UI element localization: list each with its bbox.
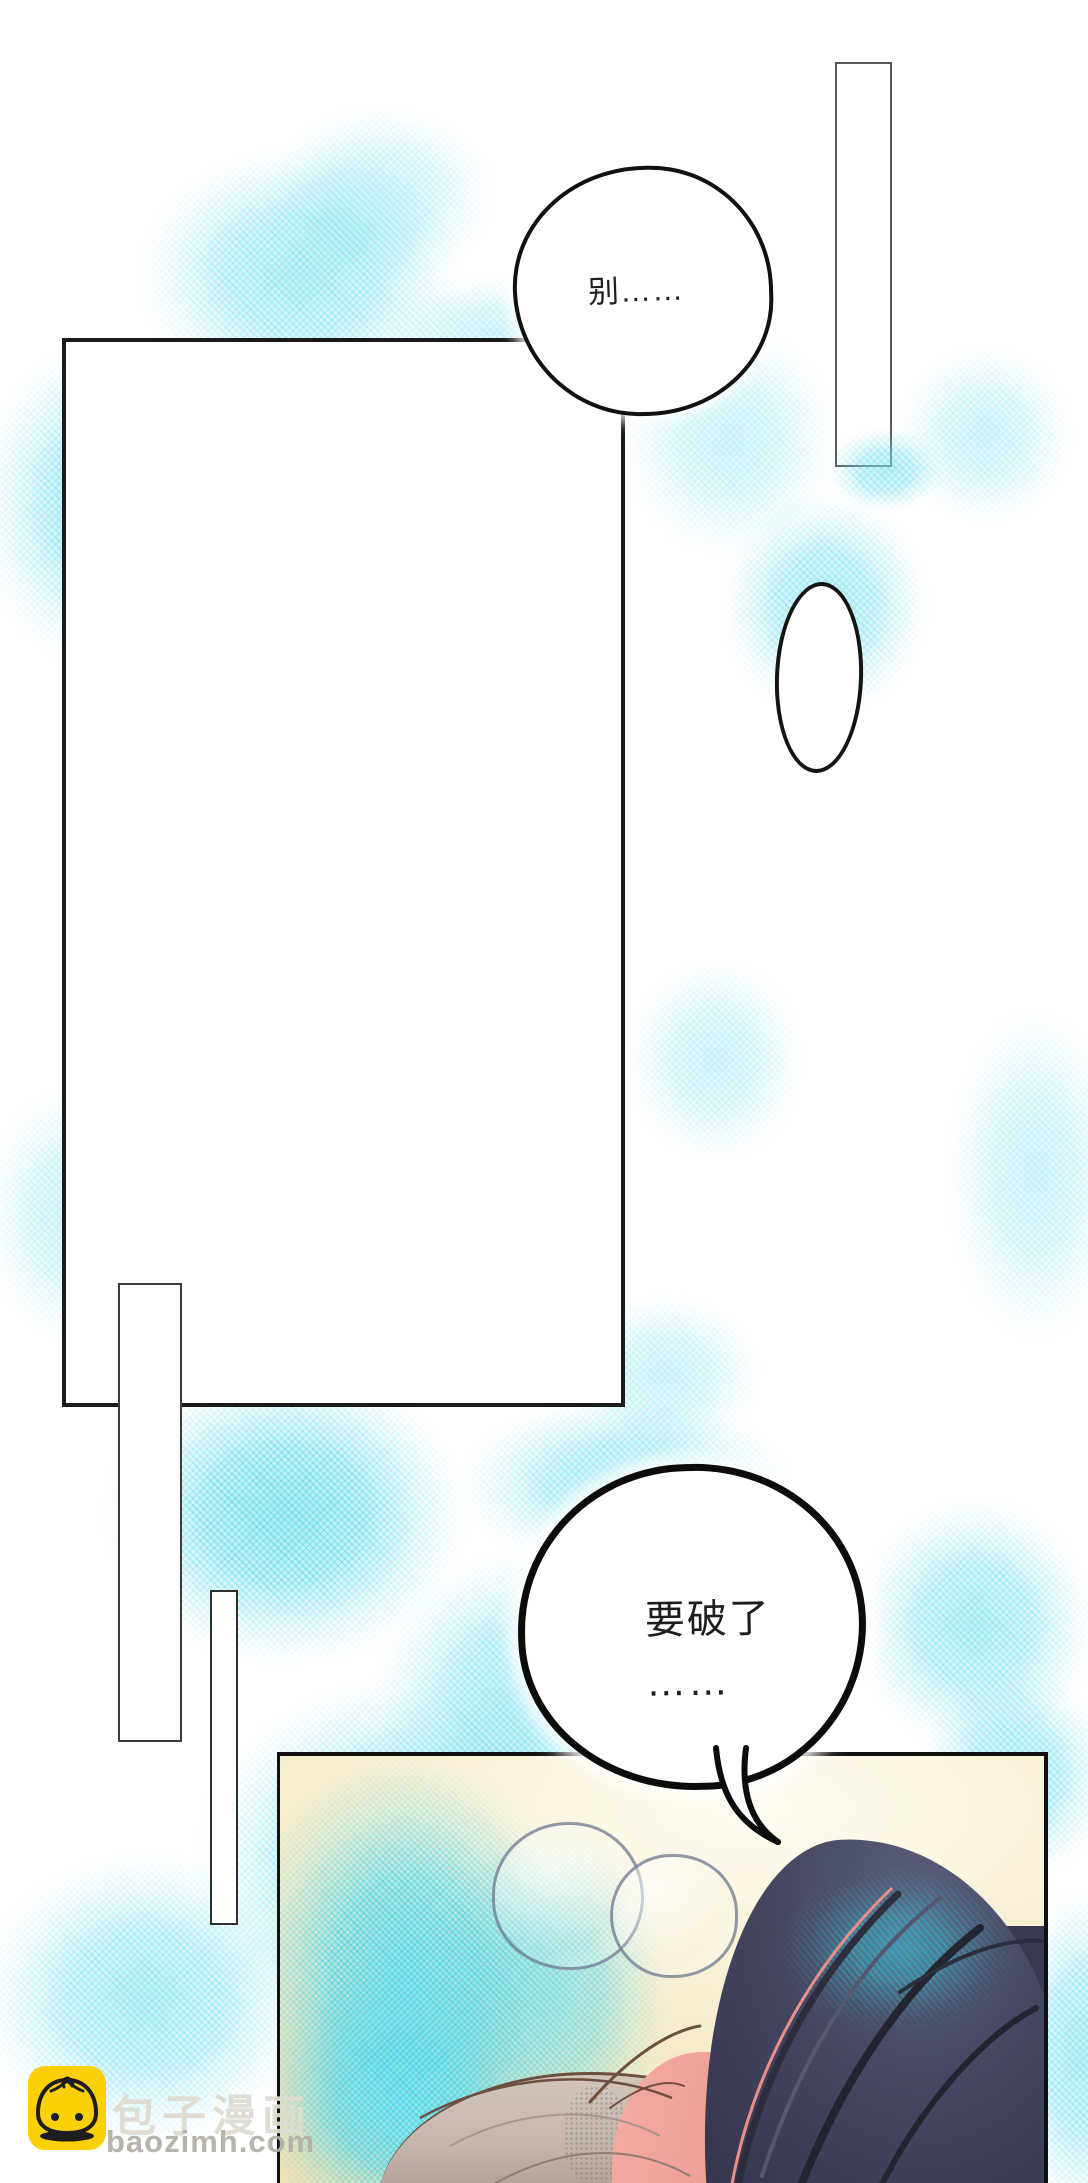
hair-strands-illustration: [280, 1756, 1048, 2183]
speech-line-2: ……: [645, 1650, 772, 1714]
small-oval-bubble: [772, 581, 867, 775]
speech-text: 别……: [516, 261, 755, 314]
speech-bubble-tail: [690, 1742, 800, 1860]
empty-panel-bar-2: [210, 1590, 238, 1925]
watercolor-blob: [600, 930, 830, 1190]
bottom-art-panel: [277, 1752, 1048, 2183]
empty-panel-tall: [835, 62, 892, 467]
comic-page: 别…… 要破了 …… 包子漫画 baozimh.com: [0, 0, 1088, 2183]
watercolor-blob: [230, 80, 530, 310]
speech-text: 要破了 ……: [644, 1588, 772, 1714]
empty-panel-large: [62, 338, 625, 1407]
speech-line-1: 要破了: [644, 1588, 771, 1652]
watermark-site-text: baozimh.com: [106, 2124, 315, 2160]
watercolor-blob: [870, 320, 1088, 550]
bun-mascot-icon: [28, 2066, 106, 2150]
empty-panel-bar-1: [118, 1283, 182, 1742]
watercolor-blob: [920, 960, 1088, 1390]
